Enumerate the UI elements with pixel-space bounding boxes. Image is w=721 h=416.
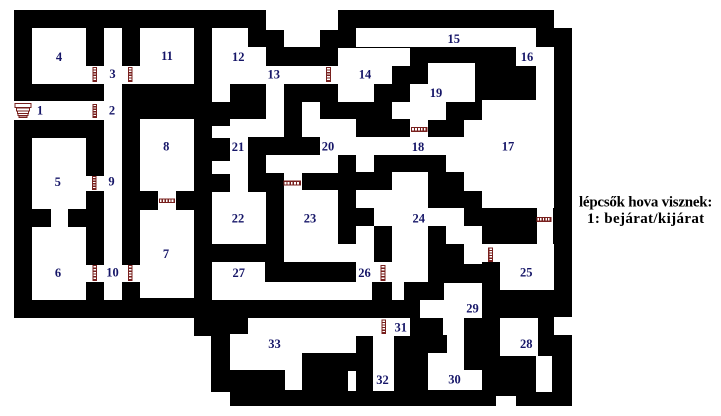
svg-text:17: 17 — [502, 140, 515, 154]
svg-text:33: 33 — [268, 337, 281, 351]
svg-text:lépcsők hova visznek:: lépcsők hova visznek: — [579, 195, 712, 211]
svg-text:29: 29 — [466, 302, 479, 316]
svg-text:8: 8 — [163, 140, 169, 154]
svg-text:9: 9 — [108, 175, 114, 189]
svg-text:25: 25 — [520, 266, 533, 280]
svg-text:6: 6 — [55, 266, 61, 280]
svg-text:31: 31 — [395, 321, 408, 335]
svg-text:2: 2 — [109, 104, 115, 118]
svg-text:20: 20 — [322, 140, 335, 154]
svg-text:4: 4 — [56, 50, 63, 64]
svg-text:28: 28 — [520, 337, 533, 351]
svg-text:3: 3 — [109, 67, 115, 81]
svg-text:19: 19 — [430, 86, 443, 100]
svg-text:21: 21 — [232, 140, 245, 154]
svg-text:13: 13 — [268, 67, 281, 81]
svg-text:30: 30 — [448, 373, 461, 387]
svg-text:1: bejárat/kijárat: 1: bejárat/kijárat — [587, 211, 705, 227]
svg-text:24: 24 — [413, 212, 426, 226]
svg-text:32: 32 — [376, 373, 389, 387]
svg-text:16: 16 — [521, 50, 534, 64]
svg-text:22: 22 — [232, 212, 245, 226]
svg-text:11: 11 — [161, 49, 173, 63]
svg-text:7: 7 — [163, 247, 169, 261]
svg-text:14: 14 — [359, 68, 372, 82]
svg-text:18: 18 — [412, 140, 425, 154]
svg-text:23: 23 — [304, 212, 317, 226]
svg-text:5: 5 — [55, 175, 61, 189]
svg-text:10: 10 — [106, 266, 119, 280]
svg-text:15: 15 — [447, 32, 460, 46]
svg-text:27: 27 — [233, 266, 246, 280]
svg-text:26: 26 — [358, 266, 371, 280]
svg-text:12: 12 — [232, 50, 245, 64]
svg-text:1: 1 — [37, 104, 43, 118]
